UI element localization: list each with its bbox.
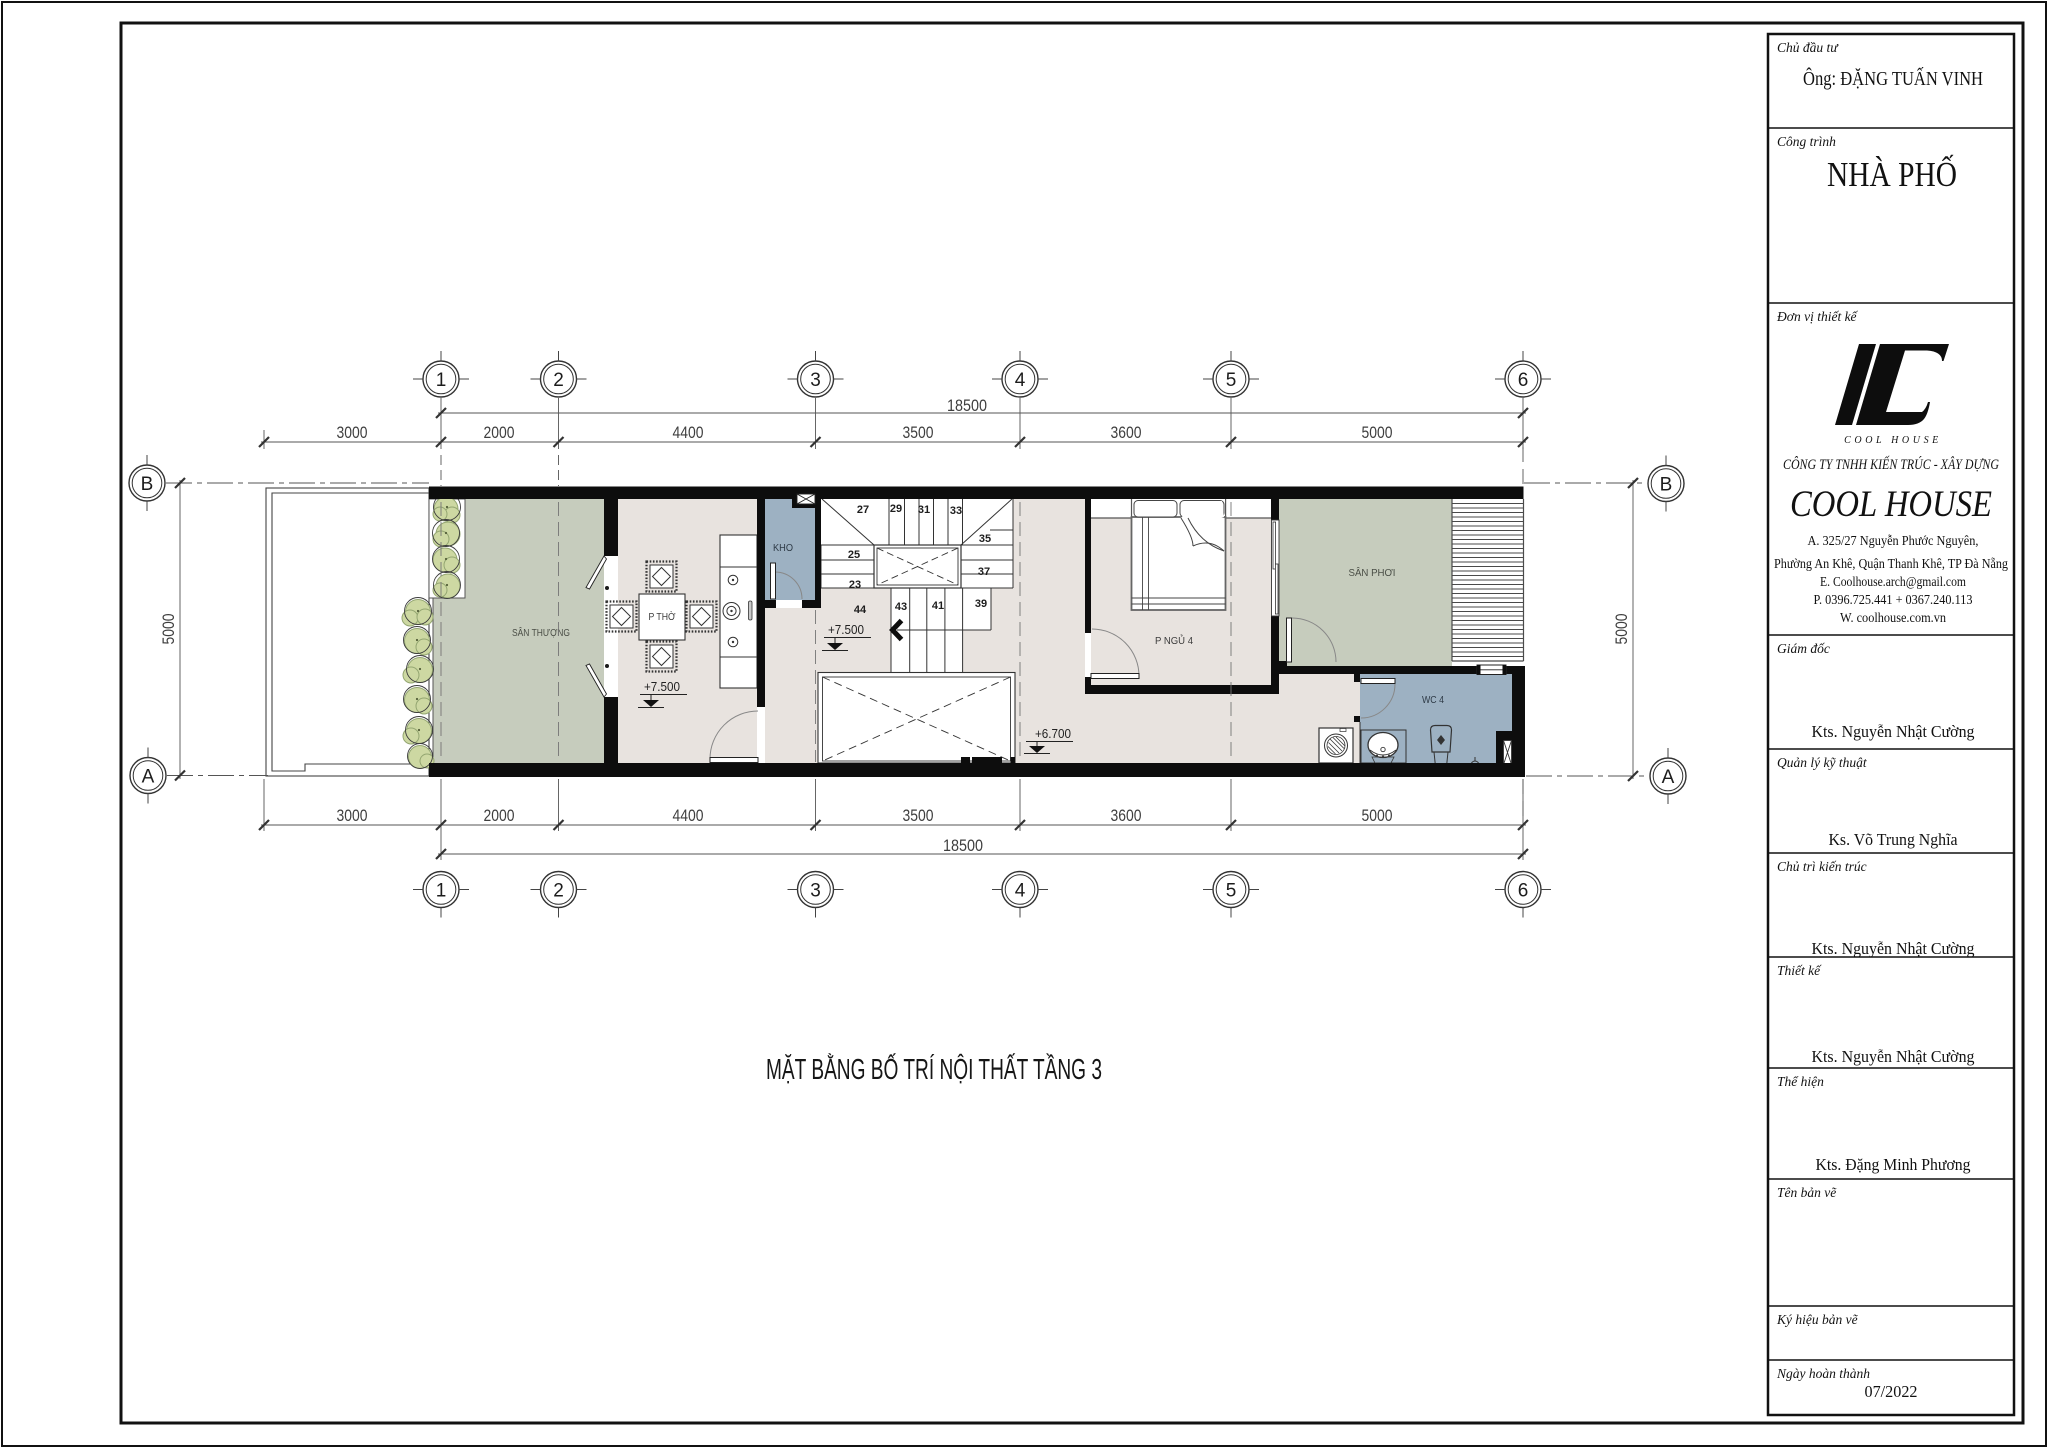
svg-text:Kts. Nguyễn Nhật Cường: Kts. Nguyễn Nhật Cường (1812, 722, 1975, 741)
svg-text:2: 2 (553, 370, 564, 391)
svg-text:1: 1 (436, 370, 447, 391)
svg-text:Ký hiệu bản vẽ: Ký hiệu bản vẽ (1776, 1312, 1859, 1327)
svg-text:5: 5 (1226, 881, 1237, 902)
svg-text:3600: 3600 (1111, 423, 1142, 442)
svg-text:W. coolhouse.com.vn: W. coolhouse.com.vn (1840, 610, 1946, 625)
svg-text:3500: 3500 (903, 806, 934, 825)
svg-text:Quản lý kỹ thuật: Quản lý kỹ thuật (1777, 755, 1868, 770)
svg-text:2000: 2000 (484, 806, 515, 825)
svg-text:6: 6 (1518, 881, 1529, 902)
svg-text:29: 29 (890, 503, 902, 515)
svg-text:E. Coolhouse.arch@gmail.com: E. Coolhouse.arch@gmail.com (1820, 574, 1966, 589)
svg-text:25: 25 (848, 549, 860, 561)
svg-text:23: 23 (849, 579, 861, 591)
svg-text:+6.700: +6.700 (1035, 726, 1071, 741)
svg-text:Kts. Đặng Minh Phương: Kts. Đặng Minh Phương (1816, 1155, 1971, 1174)
svg-text:5000: 5000 (1362, 806, 1393, 825)
svg-text:Thiết kế: Thiết kế (1777, 963, 1822, 978)
svg-text:COOL HOUSE: COOL HOUSE (1790, 484, 1992, 525)
svg-text:3500: 3500 (903, 423, 934, 442)
svg-text:P. 0396.725.441 + 0367.240.113: P. 0396.725.441 + 0367.240.113 (1814, 592, 1973, 607)
svg-text:18500: 18500 (947, 396, 987, 415)
svg-text:CÔNG TY TNHH KIẾN TRÚC - XÂY D: CÔNG TY TNHH KIẾN TRÚC - XÂY DỰNG (1783, 456, 1999, 473)
svg-text:1: 1 (436, 881, 447, 902)
svg-text:43: 43 (895, 601, 907, 613)
svg-text:P THỜ: P THỜ (649, 610, 676, 623)
svg-text:Kts. Nguyễn Nhật Cường: Kts. Nguyễn Nhật Cường (1812, 1047, 1975, 1066)
svg-text:SÂN PHƠI: SÂN PHƠI (1349, 566, 1396, 579)
svg-text:3: 3 (810, 370, 821, 391)
svg-text:Ngày hoàn thành: Ngày hoàn thành (1776, 1366, 1870, 1381)
svg-text:Tên bản vẽ: Tên bản vẽ (1777, 1185, 1837, 1200)
svg-text:COOL HOUSE: COOL HOUSE (1844, 435, 1942, 446)
svg-text:Ks. Võ Trung Nghĩa: Ks. Võ Trung Nghĩa (1829, 830, 1958, 849)
svg-text:Công trình: Công trình (1777, 134, 1836, 149)
svg-text:+7.500: +7.500 (644, 679, 680, 694)
svg-text:6: 6 (1518, 370, 1529, 391)
svg-text:4: 4 (1015, 881, 1026, 902)
svg-text:Kts. Nguyễn Nhật Cường: Kts. Nguyễn Nhật Cường (1812, 939, 1975, 958)
svg-text:Giám đốc: Giám đốc (1777, 641, 1830, 656)
svg-text:+7.500: +7.500 (828, 622, 864, 637)
svg-text:27: 27 (857, 504, 869, 516)
svg-text:39: 39 (975, 598, 987, 610)
svg-text:Ông: ĐẶNG TUẤN VINH: Ông: ĐẶNG TUẤN VINH (1803, 68, 1983, 90)
svg-text:07/2022: 07/2022 (1865, 1382, 1918, 1401)
svg-text:3000: 3000 (337, 806, 368, 825)
svg-text:4: 4 (1015, 370, 1026, 391)
svg-text:5000: 5000 (159, 614, 178, 645)
svg-text:A: A (142, 767, 155, 788)
svg-text:35: 35 (979, 533, 991, 545)
svg-text:Chủ đầu tư: Chủ đầu tư (1777, 40, 1839, 55)
svg-text:Thể hiện: Thể hiện (1777, 1074, 1824, 1089)
svg-text:A: A (1662, 767, 1675, 788)
svg-text:Đơn vị thiết kế: Đơn vị thiết kế (1776, 309, 1859, 324)
svg-text:18500: 18500 (943, 836, 983, 855)
svg-text:5: 5 (1226, 370, 1237, 391)
svg-text:5000: 5000 (1612, 614, 1631, 645)
svg-text:3600: 3600 (1111, 806, 1142, 825)
svg-text:3000: 3000 (337, 423, 368, 442)
svg-text:4400: 4400 (673, 423, 704, 442)
svg-text:SÂN THƯỢNG: SÂN THƯỢNG (512, 626, 570, 639)
svg-text:33: 33 (950, 505, 962, 517)
svg-text:3: 3 (810, 881, 821, 902)
svg-text:4400: 4400 (673, 806, 704, 825)
svg-text:2000: 2000 (484, 423, 515, 442)
svg-text:MẶT BẰNG BỐ TRÍ NỘI THẤT TẦNG: MẶT BẰNG BỐ TRÍ NỘI THẤT TẦNG 3 (766, 1052, 1102, 1086)
svg-text:Phường An Khê, Quận Thanh Khê,: Phường An Khê, Quận Thanh Khê, TP Đà Nẵn… (1774, 556, 2008, 571)
svg-text:B: B (1660, 475, 1673, 496)
svg-text:41: 41 (932, 600, 944, 612)
svg-text:B: B (141, 474, 154, 495)
svg-text:A. 325/27 Nguyễn Phước Nguyên,: A. 325/27 Nguyễn Phước Nguyên, (1808, 533, 1979, 548)
svg-text:WC 4: WC 4 (1422, 694, 1444, 706)
svg-text:KHO: KHO (773, 543, 793, 554)
svg-text:5000: 5000 (1362, 423, 1393, 442)
svg-text:NHÀ PHỐ: NHÀ PHỐ (1827, 153, 1957, 194)
svg-text:31: 31 (918, 504, 930, 516)
svg-text:44: 44 (854, 604, 867, 616)
svg-text:2: 2 (553, 881, 564, 902)
svg-text:37: 37 (978, 566, 990, 578)
svg-text:P NGỦ 4: P NGỦ 4 (1155, 634, 1193, 647)
svg-text:Chủ trì kiến trúc: Chủ trì kiến trúc (1777, 859, 1867, 874)
